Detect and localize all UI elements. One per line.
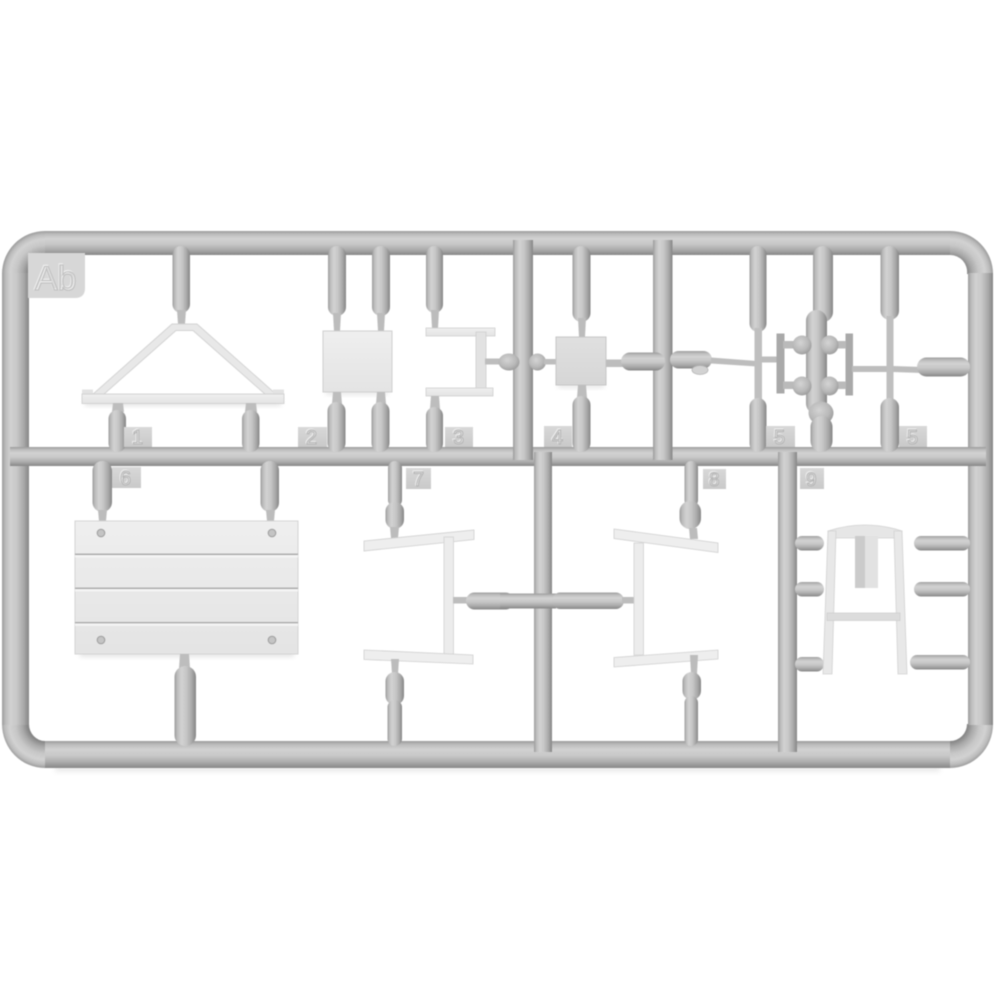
svg-text:5: 5 [907,427,918,449]
svg-text:2: 2 [306,427,317,449]
svg-text:4: 4 [552,427,563,449]
svg-text:8: 8 [709,470,720,491]
svg-text:Ab: Ab [35,260,77,298]
svg-text:6: 6 [120,468,131,490]
svg-text:5: 5 [774,427,785,449]
svg-text:7: 7 [413,469,424,491]
svg-text:1: 1 [132,427,143,449]
svg-text:3: 3 [453,427,464,449]
svg-text:9: 9 [806,470,817,491]
